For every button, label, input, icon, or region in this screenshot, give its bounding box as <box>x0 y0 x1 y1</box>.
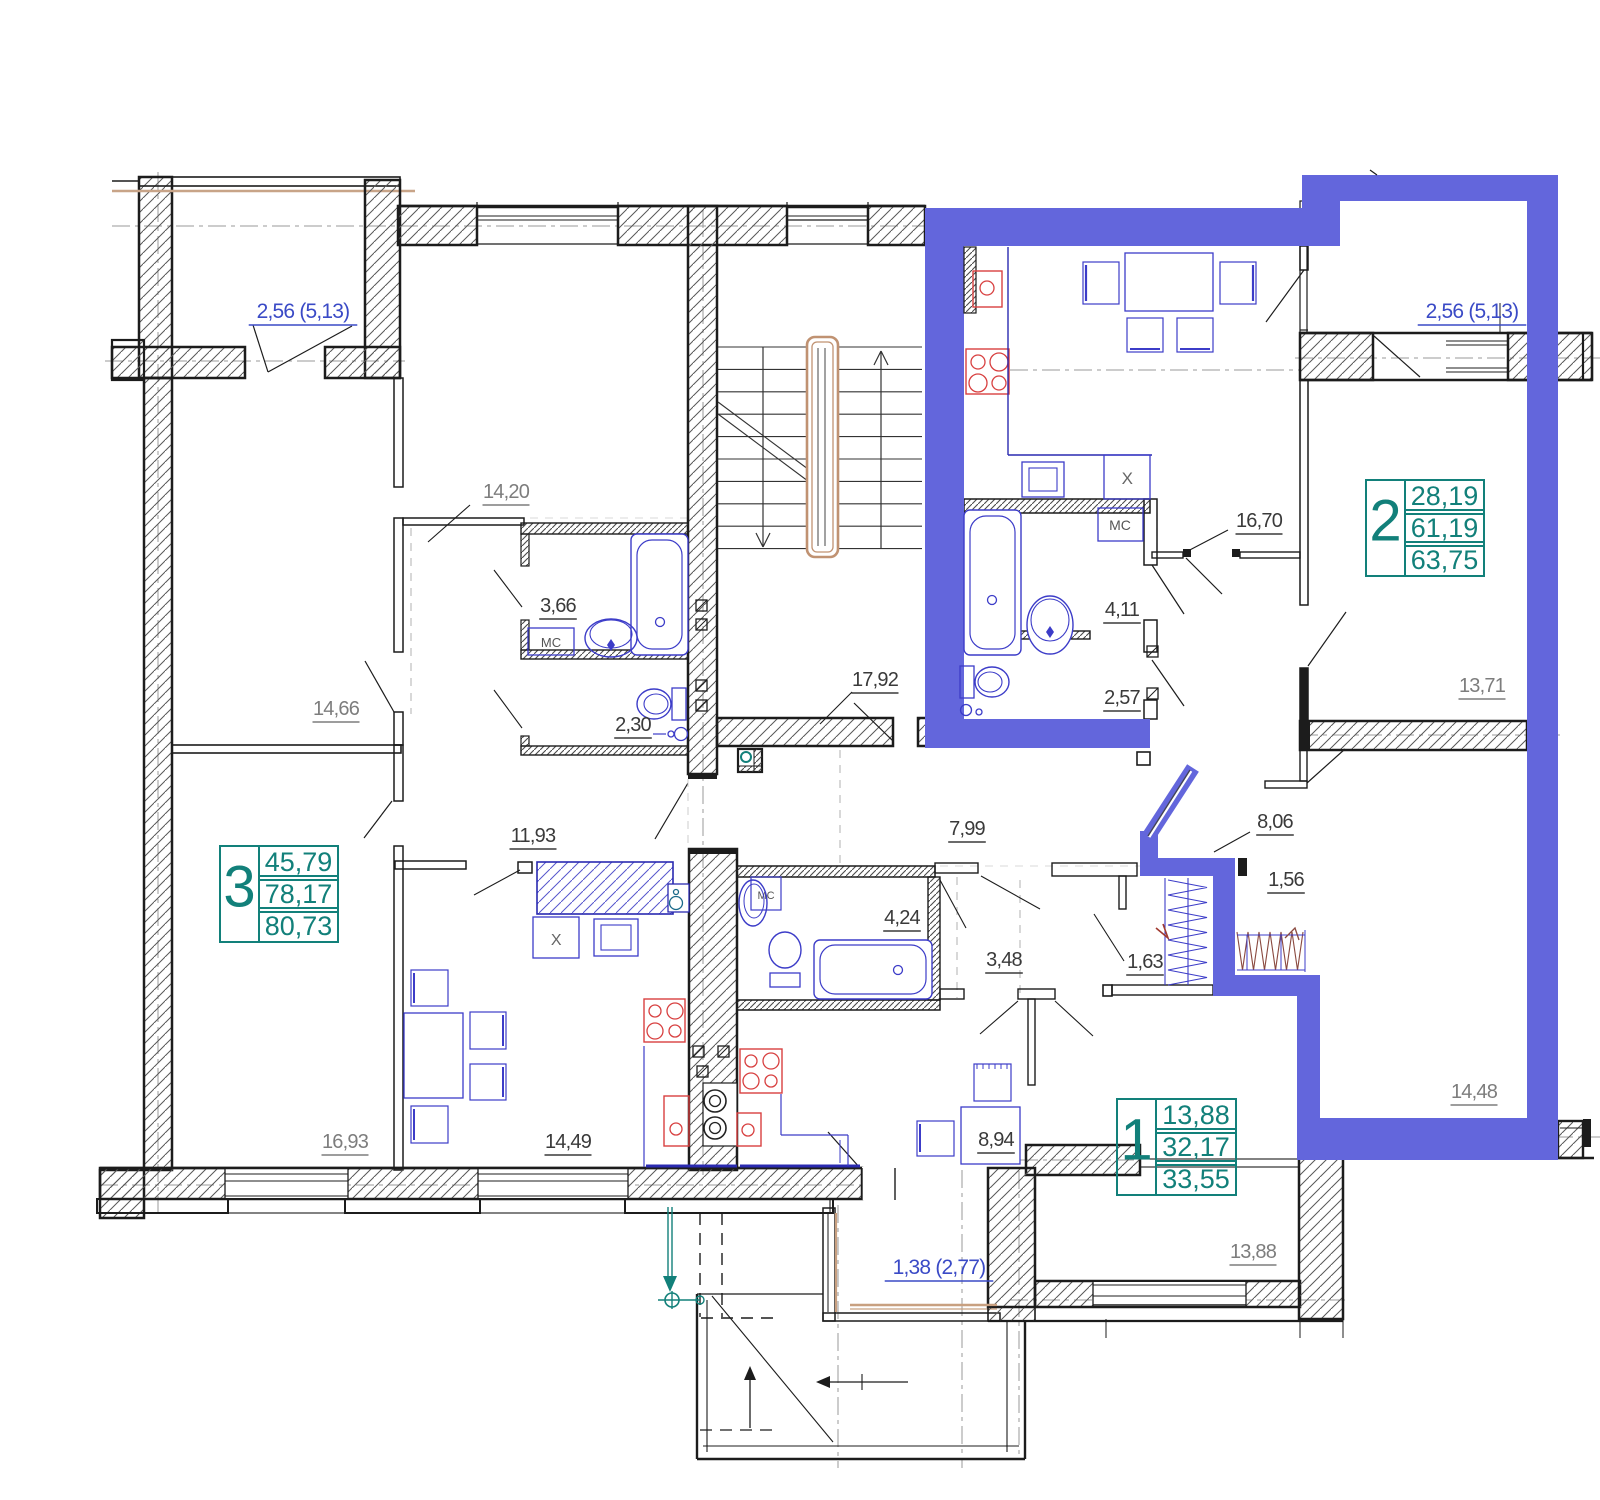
svg-text:28,19: 28,19 <box>1411 481 1479 511</box>
svg-text:3: 3 <box>223 854 255 919</box>
svg-text:11,93: 11,93 <box>511 825 556 847</box>
svg-text:8,06: 8,06 <box>1257 811 1293 833</box>
svg-text:16,93: 16,93 <box>322 1131 369 1153</box>
svg-text:1,38 (2,77): 1,38 (2,77) <box>893 1256 986 1279</box>
svg-text:X: X <box>1122 469 1133 488</box>
svg-text:1: 1 <box>1120 1107 1152 1172</box>
svg-text:1,63: 1,63 <box>1127 951 1163 973</box>
svg-text:7,99: 7,99 <box>949 818 985 840</box>
svg-text:2,56 (5,13): 2,56 (5,13) <box>1426 300 1519 323</box>
svg-text:45,79: 45,79 <box>265 847 333 877</box>
svg-text:17,92: 17,92 <box>852 669 899 691</box>
svg-text:33,55: 33,55 <box>1162 1164 1230 1194</box>
svg-text:13,88: 13,88 <box>1162 1100 1230 1130</box>
svg-text:8,94: 8,94 <box>978 1129 1014 1151</box>
svg-text:4,11: 4,11 <box>1105 599 1140 621</box>
svg-text:MC: MC <box>1109 517 1131 533</box>
svg-text:63,75: 63,75 <box>1411 545 1479 575</box>
svg-text:1,56: 1,56 <box>1268 869 1304 891</box>
svg-text:61,19: 61,19 <box>1411 513 1479 543</box>
svg-text:X: X <box>551 932 562 949</box>
svg-text:78,17: 78,17 <box>265 879 333 909</box>
svg-text:32,17: 32,17 <box>1162 1132 1230 1162</box>
svg-text:80,73: 80,73 <box>265 911 333 941</box>
svg-text:4,24: 4,24 <box>884 907 920 929</box>
svg-text:14,66: 14,66 <box>313 698 360 720</box>
svg-text:2,30: 2,30 <box>615 714 651 736</box>
svg-text:14,20: 14,20 <box>483 481 530 503</box>
svg-text:2,56 (5,13): 2,56 (5,13) <box>257 300 350 323</box>
svg-text:13,88: 13,88 <box>1230 1241 1277 1263</box>
svg-text:14,48: 14,48 <box>1451 1081 1498 1103</box>
svg-text:14,49: 14,49 <box>545 1131 592 1153</box>
svg-text:2: 2 <box>1369 488 1401 553</box>
svg-text:2,57: 2,57 <box>1104 687 1140 709</box>
svg-text:3,48: 3,48 <box>986 949 1022 971</box>
svg-text:MC: MC <box>541 635 561 650</box>
svg-text:13,71: 13,71 <box>1459 675 1506 697</box>
svg-text:16,70: 16,70 <box>1236 510 1283 532</box>
svg-text:3,66: 3,66 <box>540 595 576 617</box>
